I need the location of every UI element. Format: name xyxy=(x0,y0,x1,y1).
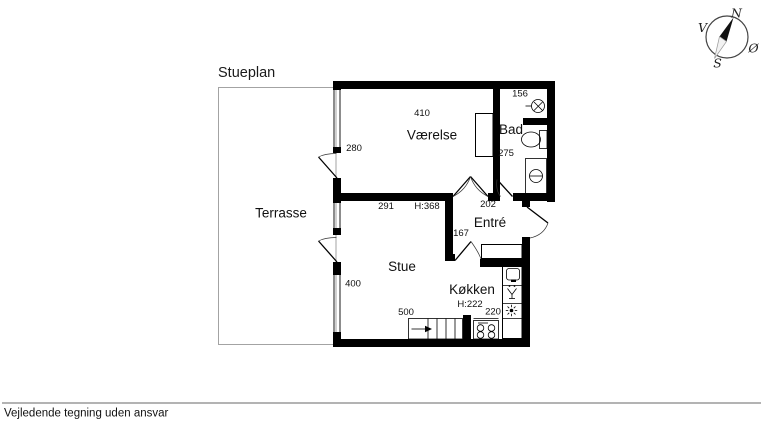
wall-segment xyxy=(445,195,453,261)
hob-icon xyxy=(506,305,517,316)
room-label-stue: Stue xyxy=(388,259,416,274)
entry-cabinet xyxy=(482,245,523,259)
compass-needle-icon xyxy=(715,18,734,59)
wall-segment xyxy=(333,339,530,347)
shower-icon xyxy=(526,159,547,197)
dim-vaerelse-width: 410 xyxy=(414,108,430,119)
stairs-icon xyxy=(409,319,463,340)
wall-segment xyxy=(333,147,341,153)
stove-icon xyxy=(474,319,499,340)
window xyxy=(334,275,340,332)
compass-label-west: V xyxy=(698,20,709,35)
dim-vaerelse-window: 280 xyxy=(346,143,362,154)
room-label-koekken: Køkken xyxy=(449,282,495,297)
window xyxy=(334,203,340,228)
disclaimer-text: Vejledende tegning uden ansvar xyxy=(4,408,169,420)
room-label-entre: Entré xyxy=(474,215,506,230)
floorplan-drawing: Stueplan xyxy=(0,0,768,422)
dim-bad-width: 156 xyxy=(512,89,528,100)
wardrobe-cabinet xyxy=(476,114,494,157)
bath-partition-wall xyxy=(523,118,555,125)
wall-segment xyxy=(445,254,455,261)
wall-segment xyxy=(513,193,555,201)
windows xyxy=(334,90,340,332)
compass-label-south: S xyxy=(713,56,722,71)
compass-label-east: Ø xyxy=(747,41,759,56)
wall-segment xyxy=(333,332,341,339)
compass-rose: N Ø S V xyxy=(698,6,759,71)
wall-segment xyxy=(547,81,555,202)
window xyxy=(334,90,340,147)
wall-segment xyxy=(333,193,453,201)
wall-segment xyxy=(522,193,530,207)
dishwasher-icon xyxy=(508,285,517,298)
dim-stue-top-width: 291 xyxy=(378,201,394,212)
room-label-vaerelse: Værelse xyxy=(407,128,457,143)
wall-segment xyxy=(463,315,471,339)
entrance-door-swing xyxy=(527,207,548,238)
dim-entre-width: 202 xyxy=(480,199,496,210)
wall-segment xyxy=(333,262,341,275)
dim-vaerelse-depth: 275 xyxy=(498,148,514,159)
dim-entre-depth: 167 xyxy=(453,228,469,239)
hall-door-swing xyxy=(455,242,481,261)
wall-segment xyxy=(333,228,341,235)
toilet-icon xyxy=(522,131,548,149)
floorplan-page: Stueplan xyxy=(0,0,768,422)
wall-segment xyxy=(522,237,530,347)
compass-label-north: N xyxy=(730,6,743,21)
sink-unit-icon xyxy=(507,269,520,283)
dim-koekken-ceiling-height: H:222 xyxy=(457,299,482,310)
stairs-direction-arrow xyxy=(425,326,432,332)
dim-stue-window: 400 xyxy=(345,279,361,290)
wall-segment xyxy=(333,81,341,90)
room-label-terrasse: Terrasse xyxy=(255,206,307,221)
dim-stue-bottom-width: 500 xyxy=(398,307,414,318)
kitchen-counter xyxy=(503,266,523,339)
room-label-bad: Bad xyxy=(499,122,523,137)
dim-stue-ceiling-height: H:368 xyxy=(414,201,439,212)
terrace-door-swing xyxy=(319,238,338,263)
washbasin-icon xyxy=(526,100,545,113)
page-title: Stueplan xyxy=(218,65,275,81)
bedroom-door-swing xyxy=(453,177,488,197)
dim-koekken-width: 220 xyxy=(485,307,501,318)
terrace-door-swing xyxy=(319,154,338,179)
